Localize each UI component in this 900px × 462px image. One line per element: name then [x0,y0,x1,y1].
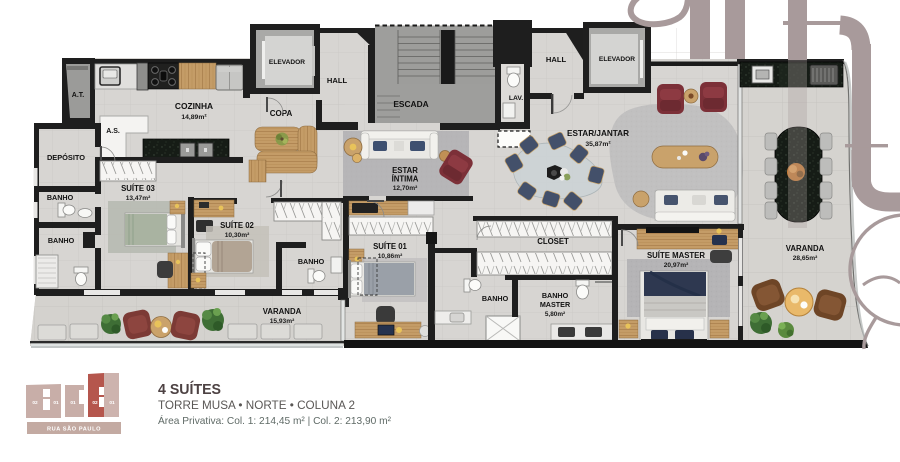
svg-text:BANHO: BANHO [47,193,74,202]
svg-text:4 SUÍTES: 4 SUÍTES [158,381,221,398]
svg-text:A.T.: A.T. [72,92,85,99]
svg-text:20,97m²: 20,97m² [664,262,689,269]
svg-text:A.S.: A.S. [106,128,120,135]
svg-text:BANHO: BANHO [482,294,509,303]
svg-text:TORRE MUSA • NORTE • COLUNA 2: TORRE MUSA • NORTE • COLUNA 2 [158,398,355,412]
svg-text:01: 01 [70,400,76,406]
svg-text:02: 02 [32,400,38,406]
svg-text:5,80m²: 5,80m² [545,311,565,318]
svg-text:SUÍTE 03: SUÍTE 03 [121,184,155,193]
svg-text:SUÍTE MASTER: SUÍTE MASTER [647,251,705,260]
svg-text:RUA SÃO PAULO: RUA SÃO PAULO [47,426,101,433]
svg-text:BANHO: BANHO [298,257,325,266]
svg-text:28,65m²: 28,65m² [793,255,818,262]
svg-text:ESTAR/JANTAR: ESTAR/JANTAR [567,129,629,138]
svg-text:02: 02 [92,400,98,406]
svg-text:COZINHA: COZINHA [175,101,213,111]
svg-text:ÍNTIMA: ÍNTIMA [392,175,419,184]
svg-text:VARANDA: VARANDA [786,244,825,253]
svg-text:SUÍTE 01: SUÍTE 01 [373,242,407,251]
svg-text:Área Privativa: Col. 1: 214,45: Área Privativa: Col. 1: 214,45 m² | Col.… [158,414,391,427]
svg-text:01: 01 [53,400,59,406]
svg-text:ESCADA: ESCADA [393,99,428,109]
svg-text:10,30m²: 10,30m² [225,232,250,239]
svg-text:12,70m²: 12,70m² [393,185,418,192]
svg-text:01: 01 [109,400,115,406]
svg-text:BANHO: BANHO [48,236,75,245]
svg-text:CLOSET: CLOSET [537,237,569,246]
svg-text:SUÍTE 02: SUÍTE 02 [220,221,254,230]
svg-text:COPA: COPA [270,109,293,118]
svg-text:MASTER: MASTER [540,300,571,309]
svg-text:ELEVADOR: ELEVADOR [269,59,305,66]
svg-text:14,89m²: 14,89m² [181,114,207,121]
svg-text:HALL: HALL [546,55,567,64]
svg-text:10,86m²: 10,86m² [378,253,403,260]
svg-text:LAV.: LAV. [509,95,523,102]
svg-text:VARANDA: VARANDA [263,307,302,316]
svg-text:13,47m²: 13,47m² [126,195,151,202]
svg-text:ELEVADOR: ELEVADOR [599,56,635,63]
svg-text:HALL: HALL [327,76,348,85]
svg-text:BANHO: BANHO [542,291,569,300]
svg-text:DEPÓSITO: DEPÓSITO [47,153,85,162]
svg-text:35,87m²: 35,87m² [585,141,611,148]
